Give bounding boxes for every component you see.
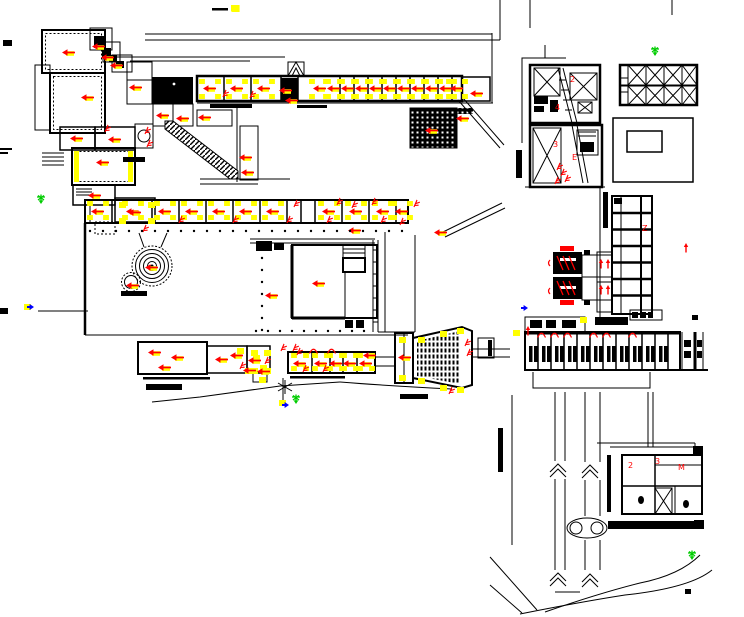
highlight-chip <box>435 79 441 84</box>
red-scribble-mark <box>565 175 571 182</box>
red-scribble-mark <box>327 216 333 223</box>
highlight-chip <box>418 378 425 384</box>
highlight-chip <box>269 94 275 99</box>
red-arrow-annotation <box>158 208 171 215</box>
highlight-chip <box>379 94 385 99</box>
column-dot <box>375 230 377 232</box>
red-arrow-annotation <box>212 208 225 215</box>
highlight-chip <box>399 375 406 381</box>
red-arrow-annotation <box>312 280 325 287</box>
highlight-chip <box>148 218 155 224</box>
site-boundary-stubs <box>480 0 672 58</box>
red-arrow-annotation <box>203 85 216 92</box>
red-arrow-annotation <box>70 135 83 142</box>
red-text-label: 3 <box>655 457 660 466</box>
red-arrow-annotation <box>198 114 211 121</box>
highlight-chip <box>391 215 397 220</box>
column-dot <box>245 230 247 232</box>
highlight-chip <box>407 94 413 99</box>
column-dot <box>323 230 325 232</box>
highlight-chip <box>312 366 318 371</box>
highlight-chip <box>372 215 378 220</box>
highlight-chip <box>418 337 425 343</box>
column-dot <box>388 230 390 232</box>
column-dot <box>284 230 286 232</box>
legend-highlight-chip <box>231 5 239 12</box>
red-arrow-annotation <box>355 85 368 92</box>
highlight-chip <box>351 79 357 84</box>
column-dot <box>261 269 263 271</box>
highlight-chip <box>407 215 413 220</box>
highlight-chip <box>379 79 385 84</box>
green-stamp-icon <box>688 551 696 561</box>
red-text-label: 2 <box>628 461 633 470</box>
red-vertical-arrow <box>606 285 610 295</box>
column-dot <box>363 330 365 332</box>
column-dot <box>261 293 263 295</box>
red-scribble-mark <box>465 339 471 346</box>
red-arrow-annotation <box>293 360 306 367</box>
highlight-chip <box>446 94 452 99</box>
highlight-chip <box>341 366 347 371</box>
red-arrow-annotation <box>395 208 408 215</box>
highlight-chip <box>224 215 230 220</box>
column-dot <box>232 230 234 232</box>
red-arrow-annotation <box>215 356 228 363</box>
column-dot <box>401 230 403 232</box>
highlight-chip <box>291 353 297 358</box>
red-arrow-annotation <box>241 169 254 176</box>
green-stamp-icon <box>651 47 659 57</box>
red-arrow-annotation <box>359 360 372 367</box>
highlight-chip <box>242 94 248 99</box>
red-arrow-annotation <box>239 208 252 215</box>
highlight-chip <box>361 215 367 220</box>
highlight-chip <box>323 94 329 99</box>
highlight-chip <box>357 353 363 358</box>
access-roads <box>490 392 712 614</box>
red-arrow-annotation <box>470 90 483 97</box>
highlight-chip <box>365 94 371 99</box>
column-dot <box>167 230 169 232</box>
column-dot <box>303 330 305 332</box>
highlight-chip <box>170 201 176 206</box>
red-text-label: 2 <box>570 75 575 84</box>
red-text-label: Z <box>642 224 648 233</box>
red-scribble-mark <box>557 163 563 170</box>
column-dot <box>351 330 353 332</box>
column-dot <box>291 330 293 332</box>
red-vertical-arrow <box>599 259 603 269</box>
highlight-chip <box>87 215 93 220</box>
highlight-chip <box>462 79 468 84</box>
red-arrow-annotation <box>322 208 335 215</box>
red-arrow-annotation <box>171 354 184 361</box>
window-bars <box>529 346 668 362</box>
highlight-chip <box>138 201 144 206</box>
red-arrow-annotation <box>341 85 354 92</box>
highlight-chip <box>291 366 297 371</box>
northwest-wing <box>35 28 152 133</box>
highlight-chip <box>407 79 413 84</box>
highlight-chip <box>451 94 457 99</box>
highlight-chip <box>103 215 109 220</box>
red-arrow-annotation <box>185 208 198 215</box>
highlight-chip <box>170 215 176 220</box>
highlight-chip <box>224 201 230 206</box>
red-scribble-mark <box>293 344 299 351</box>
red-vertical-arrow <box>606 259 610 269</box>
red-arrow-annotation <box>397 85 410 92</box>
column-dot <box>362 230 364 232</box>
column-dot <box>297 230 299 232</box>
column-dot <box>206 230 208 232</box>
highlight-chip <box>253 79 259 84</box>
highlight-chip <box>181 201 187 206</box>
red-arrow-annotation <box>266 208 279 215</box>
column-dot <box>349 230 351 232</box>
highlight-chip <box>309 79 315 84</box>
red-vertical-arrow <box>599 285 603 295</box>
red-arrow-annotation <box>239 154 252 161</box>
column-dot <box>279 330 281 332</box>
highlight-chip <box>337 94 343 99</box>
highlight-chip <box>580 317 587 323</box>
red-arrow-annotation <box>425 85 438 92</box>
floor-plan-linework <box>0 0 712 614</box>
highlight-chip <box>421 94 427 99</box>
column-dot <box>102 230 104 232</box>
highlight-chip <box>421 79 427 84</box>
column-dot <box>261 317 263 319</box>
highlight-chip <box>399 337 406 343</box>
highlight-chip <box>393 94 399 99</box>
column-dot <box>315 330 317 332</box>
highlight-chip <box>435 94 441 99</box>
column-dot <box>258 230 260 232</box>
column-dot <box>327 330 329 332</box>
red-arrow-annotation <box>129 84 142 91</box>
cad-drawing-canvas[interactable]: 243EZ23M <box>0 0 744 617</box>
highlight-chip <box>451 79 457 84</box>
column-dot <box>267 330 269 332</box>
red-arrow-annotation <box>314 360 327 367</box>
highlight-chip <box>215 79 221 84</box>
southeast-block <box>608 446 704 594</box>
column-dot <box>261 281 263 283</box>
central-hall <box>250 232 415 332</box>
column-dot <box>115 230 117 232</box>
red-arrow-annotation <box>434 229 447 236</box>
auditorium <box>395 327 510 399</box>
legend-marks <box>212 8 228 11</box>
highlight-chip <box>262 201 268 206</box>
column-dot <box>336 230 338 232</box>
column-dot <box>261 329 263 331</box>
highlight-chip <box>457 328 464 334</box>
column-dot <box>261 257 263 259</box>
highlight-chip <box>323 79 329 84</box>
highlight-chip <box>341 353 347 358</box>
highlight-chip <box>327 366 333 371</box>
highlight-chip <box>391 201 397 206</box>
red-text-label: 3 <box>553 140 558 149</box>
red-arrow-annotation <box>411 85 424 92</box>
red-scribble-mark <box>381 216 387 223</box>
red-arrow-annotation <box>343 360 356 367</box>
red-scribble-mark <box>143 225 149 232</box>
floor-plan-svg: 243EZ23M <box>0 0 744 617</box>
highlight-chip <box>269 79 275 84</box>
red-scribble-mark <box>287 216 293 223</box>
highlight-chip <box>208 201 214 206</box>
highlight-chip <box>513 330 520 336</box>
column-dot <box>219 230 221 232</box>
highlight-chip <box>407 201 413 206</box>
highlight-chip <box>440 331 447 337</box>
column-dot <box>180 230 182 232</box>
red-arrow-annotation <box>108 136 121 143</box>
red-vertical-arrow <box>684 243 688 253</box>
red-arrow-annotation <box>349 208 362 215</box>
red-arrow-annotation <box>81 94 94 101</box>
column-dot <box>193 230 195 232</box>
column-dot <box>310 230 312 232</box>
red-scribble-mark <box>294 200 300 207</box>
highlight-chip <box>278 215 284 220</box>
red-arrow-annotation <box>62 49 75 56</box>
highlight-chip <box>122 201 128 206</box>
highlight-chip <box>318 215 324 220</box>
highlight-chip <box>365 79 371 84</box>
highlight-chip <box>345 201 351 206</box>
red-scribble-mark <box>352 201 358 208</box>
highlight-chip <box>462 94 468 99</box>
highlight-chip <box>318 201 324 206</box>
column-dot <box>271 230 273 232</box>
red-arrow-annotation <box>88 192 101 199</box>
highlight-chip <box>303 353 309 358</box>
highlight-chip <box>345 215 351 220</box>
east-long-building <box>525 315 708 388</box>
green-stamp-icon <box>37 195 45 205</box>
highlight-chip <box>251 215 257 220</box>
highlight-chip <box>259 377 266 383</box>
highlight-chip <box>148 202 155 208</box>
highlight-chip <box>154 215 160 220</box>
red-arrow-annotation <box>265 292 278 299</box>
highlight-chip <box>337 79 343 84</box>
red-stair-core <box>549 246 613 305</box>
highlight-chip <box>393 79 399 84</box>
highlight-chip <box>235 201 241 206</box>
highlight-chip <box>251 201 257 206</box>
red-arrow-annotation <box>158 364 171 371</box>
red-arrow-annotation <box>376 208 389 215</box>
red-scribble-mark <box>449 387 455 394</box>
red-scribble-mark <box>281 344 287 351</box>
highlight-chip <box>87 201 93 206</box>
green-stamp-icon <box>292 395 300 405</box>
highlight-chip <box>446 79 452 84</box>
highlight-chip <box>278 201 284 206</box>
column-dot <box>154 230 156 232</box>
red-arrow-annotation <box>230 85 243 92</box>
highlight-chip <box>309 94 315 99</box>
red-arrow-annotation <box>156 112 169 119</box>
red-scribble-mark <box>240 362 246 369</box>
highlight-chip <box>361 201 367 206</box>
highlight-chip <box>357 366 363 371</box>
highlight-chip <box>122 215 128 220</box>
highlight-chip <box>197 215 203 220</box>
red-arrow-annotation <box>91 208 104 215</box>
highlight-chip <box>103 201 109 206</box>
highlight-chip <box>199 94 205 99</box>
hatched-ramp <box>165 121 238 179</box>
red-arrow-annotation <box>383 85 396 92</box>
northeast-block <box>516 58 697 187</box>
west-mid-building <box>42 124 155 234</box>
highlight-chip <box>226 79 232 84</box>
red-scribble-mark <box>414 200 420 207</box>
highlight-chip <box>440 385 447 391</box>
red-arrow-annotation <box>313 85 326 92</box>
red-arrow-annotation <box>329 360 342 367</box>
highlight-chip <box>457 387 464 393</box>
red-arrow-annotation <box>176 115 189 122</box>
highlight-chip <box>334 215 340 220</box>
highlight-chip <box>242 79 248 84</box>
red-arrow-annotation <box>148 349 161 356</box>
column-dot <box>89 230 91 232</box>
red-text-label: 4 <box>555 103 560 112</box>
checkered-plant-square <box>410 108 457 148</box>
highlight-chip <box>312 353 318 358</box>
column-dot <box>141 230 143 232</box>
red-arrow-annotation <box>327 85 340 92</box>
blue-mark <box>521 305 528 311</box>
highlight-chip <box>208 215 214 220</box>
highlight-chip <box>215 94 221 99</box>
red-scribble-mark <box>561 169 567 176</box>
column-dot <box>339 330 341 332</box>
red-arrow-annotation <box>369 85 382 92</box>
highlight-chip <box>351 94 357 99</box>
highlight-chip <box>262 215 268 220</box>
highlight-chip <box>264 350 271 356</box>
highlight-chip <box>237 348 244 354</box>
red-arrow-annotation <box>456 115 469 122</box>
column-dot <box>261 245 263 247</box>
highlight-chip <box>327 353 333 358</box>
red-arrow-annotation <box>96 159 109 166</box>
highlight-chip <box>199 79 205 84</box>
red-text-label: E <box>572 153 577 162</box>
red-text-label: M <box>678 463 685 472</box>
highlight-chip <box>197 201 203 206</box>
highlight-chip <box>154 201 160 206</box>
column-dot <box>261 305 263 307</box>
column-dot <box>128 230 130 232</box>
red-arrow-annotation <box>257 85 270 92</box>
column-dot <box>255 330 257 332</box>
